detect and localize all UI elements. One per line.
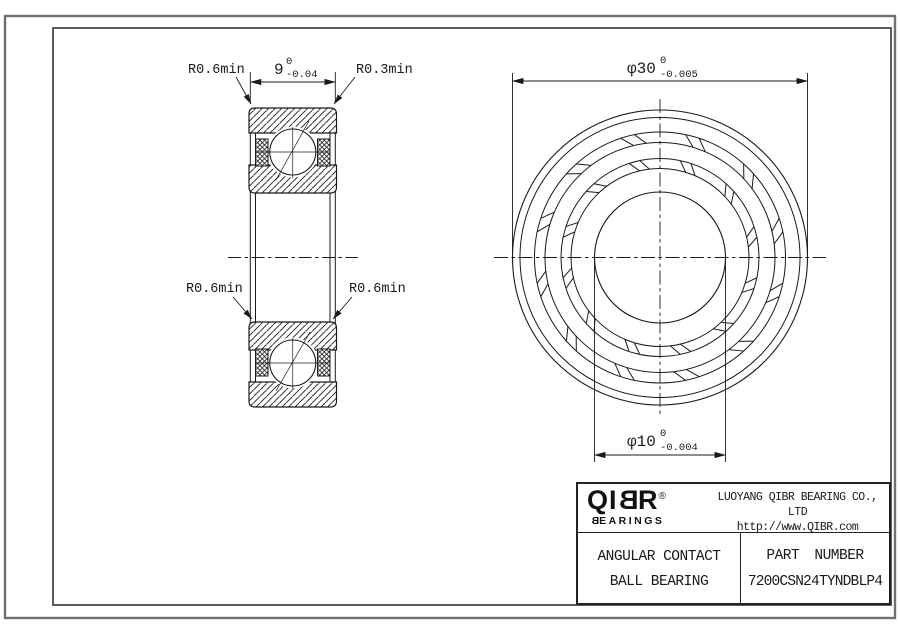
product-name-line2: BALL BEARING	[610, 574, 708, 590]
bore-dim-upper-tol: 0	[660, 428, 666, 440]
title-block-detail-row: ANGULAR CONTACT BALL BEARING PART NUMBER…	[578, 533, 889, 605]
od-dim-upper-tol: 0	[660, 55, 666, 67]
part-number-label: PART NUMBER	[766, 548, 863, 564]
company-name: LUOYANG QIBR BEARING CO., LTD	[706, 490, 889, 520]
label-r-mid-right: R0.6min	[349, 282, 406, 297]
cage-left-bottom	[256, 349, 269, 376]
width-dim-lower-tol: -0.04	[286, 69, 318, 81]
cage-right-bottom	[318, 349, 331, 376]
label-r-mid-left: R0.6min	[186, 282, 243, 297]
registered-trademark-icon: ®	[659, 491, 666, 502]
part-number-cell: PART NUMBER 7200CSN24TYNDBLP4	[740, 533, 889, 605]
label-r-top-left: R0.6min	[188, 63, 245, 78]
drawing-sheet: 9 0 -0.04 R0.6min R0.3min R0.6min R0.6mi…	[0, 0, 900, 636]
logo-wordmark: QIBR	[587, 485, 659, 515]
width-dimension: 9 0 -0.04	[250, 56, 335, 103]
logo-subtitle: BEARINGS	[589, 515, 706, 527]
front-view: φ30 0 -0.005 φ10 0 -0.004	[494, 55, 826, 462]
company-info: LUOYANG QIBR BEARING CO., LTD http://www…	[706, 484, 889, 532]
bore-dim-value: φ10	[627, 433, 656, 451]
brand-logo: QIBR® BEARINGS	[578, 484, 706, 532]
product-name-cell: ANGULAR CONTACT BALL BEARING	[578, 533, 740, 605]
product-name-line1: ANGULAR CONTACT	[597, 549, 720, 565]
section-view: 9 0 -0.04 R0.6min R0.3min R0.6min R0.6mi…	[186, 56, 413, 407]
cage-left-top	[256, 139, 269, 166]
title-block-header-row: QIBR® BEARINGS LUOYANG QIBR BEARING CO.,…	[578, 484, 889, 533]
width-dim-value: 9	[274, 61, 284, 79]
od-dim-value: φ30	[627, 60, 656, 78]
cage-right-top	[318, 139, 331, 166]
title-block: QIBR® BEARINGS LUOYANG QIBR BEARING CO.,…	[576, 482, 891, 605]
bore-dim-lower-tol: -0.004	[660, 442, 698, 454]
width-dim-upper-tol: 0	[286, 56, 292, 68]
part-number-value: 7200CSN24TYNDBLP4	[748, 574, 882, 590]
od-dim-lower-tol: -0.005	[660, 69, 698, 81]
label-r-top-right: R0.3min	[356, 63, 413, 78]
